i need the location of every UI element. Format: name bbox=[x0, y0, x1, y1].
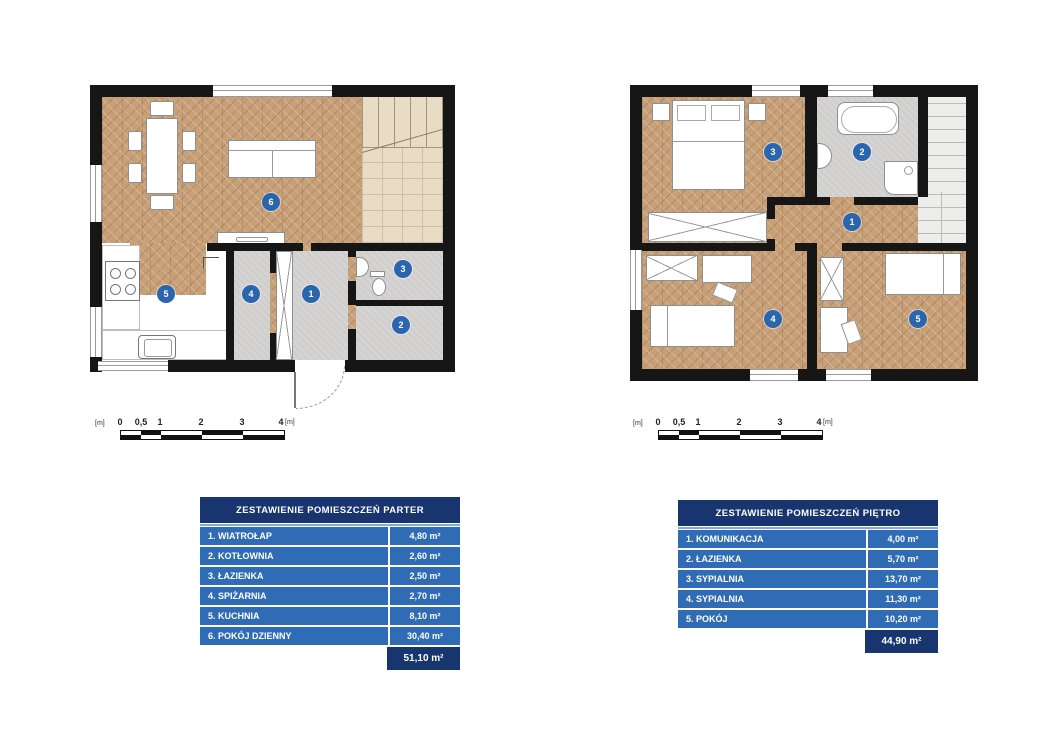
table-row: 1. WIATROŁAP 4,80 m² bbox=[200, 527, 460, 545]
table-row: 3. SYPIALNIA 13,70 m² bbox=[678, 570, 938, 588]
table-row: 1. KOMUNIKACJA 4,00 m² bbox=[678, 530, 938, 548]
legend-table-pietro: ZESTAWIENIE POMIESZCZEŃ PIĘTRO 1. KOMUNI… bbox=[678, 500, 938, 653]
wall-segment bbox=[767, 205, 775, 219]
nightstand bbox=[652, 103, 670, 121]
shower bbox=[884, 161, 918, 195]
legend-table-parter: ZESTAWIENIE POMIESZCZEŃ PARTER 1. WIATRO… bbox=[200, 497, 460, 670]
wardrobe bbox=[646, 255, 698, 281]
scale-tick: 0,5 bbox=[135, 417, 148, 427]
table-row: 6. POKÓJ DZIENNY 30,40 m² bbox=[200, 627, 460, 645]
wardrobe bbox=[648, 212, 767, 242]
scale-tick: 3 bbox=[239, 417, 244, 427]
room-label: 3. SYPIALNIA bbox=[678, 570, 866, 588]
table-row: 2. KOTŁOWNIA 2,60 m² bbox=[200, 547, 460, 565]
burner bbox=[110, 268, 121, 279]
ground-floor-plan: 6 5 4 1 3 2 bbox=[90, 85, 455, 375]
dining-chair bbox=[182, 131, 196, 151]
room-marker-2: 2 bbox=[392, 316, 410, 334]
window bbox=[752, 85, 800, 97]
table-divider bbox=[678, 527, 938, 529]
dining-table bbox=[146, 118, 178, 194]
dining-chair bbox=[150, 101, 174, 116]
single-bed bbox=[650, 305, 735, 347]
bed-pillow-line bbox=[667, 306, 668, 346]
floor-plan-sheet: 6 5 4 1 3 2 bbox=[0, 0, 1052, 744]
room-marker-6: 6 bbox=[262, 193, 280, 211]
window bbox=[826, 369, 871, 381]
room-area: 2,60 m² bbox=[390, 547, 460, 565]
room-label: 3. ŁAZIENKA bbox=[200, 567, 388, 585]
wall-segment bbox=[90, 85, 102, 165]
console-detail bbox=[236, 237, 268, 242]
dining-chair bbox=[128, 163, 142, 183]
entrance-door-swing bbox=[296, 365, 345, 409]
room-label: 1. WIATROŁAP bbox=[200, 527, 388, 545]
room-marker-2: 2 bbox=[853, 143, 871, 161]
room-marker-5: 5 bbox=[909, 310, 927, 328]
room-marker-1: 1 bbox=[843, 213, 861, 231]
wall-segment bbox=[207, 243, 303, 251]
room-area: 8,10 m² bbox=[390, 607, 460, 625]
total-area: 44,90 m² bbox=[865, 630, 938, 653]
room-label: 2. KOTŁOWNIA bbox=[200, 547, 388, 565]
scale-tick: 4 bbox=[278, 417, 283, 427]
room-marker-3: 3 bbox=[394, 260, 412, 278]
table-title: ZESTAWIENIE POMIESZCZEŃ PARTER bbox=[200, 497, 460, 523]
wall-segment bbox=[767, 239, 775, 251]
wall-segment bbox=[168, 360, 295, 372]
bathtub bbox=[837, 102, 899, 135]
bed-sheet-line bbox=[673, 141, 744, 142]
wall-segment bbox=[345, 360, 455, 372]
room-area: 4,00 m² bbox=[868, 530, 938, 548]
window bbox=[750, 369, 798, 381]
total-area: 51,10 m² bbox=[387, 647, 460, 670]
scale-tick: 2 bbox=[736, 417, 741, 427]
wall-segment bbox=[854, 197, 918, 205]
room-marker-4: 4 bbox=[764, 310, 782, 328]
scale-tick: 1 bbox=[157, 417, 162, 427]
stair-mid-line bbox=[941, 192, 942, 247]
wardrobe bbox=[820, 257, 844, 301]
tub-basin bbox=[841, 106, 897, 133]
wall-segment bbox=[630, 369, 978, 381]
terrace-door bbox=[98, 361, 168, 371]
wall-segment bbox=[443, 85, 455, 372]
room-label: 4. SYPIALNIA bbox=[678, 590, 866, 608]
wall-segment bbox=[270, 251, 276, 273]
room-area: 13,70 m² bbox=[868, 570, 938, 588]
table-title: ZESTAWIENIE POMIESZCZEŃ PIĘTRO bbox=[678, 500, 938, 526]
room-area: 2,70 m² bbox=[390, 587, 460, 605]
scale-unit-label: [m] bbox=[95, 420, 105, 427]
scale-unit-label: [m] bbox=[633, 420, 643, 427]
wall-segment bbox=[348, 251, 356, 257]
stove bbox=[105, 261, 140, 301]
single-bed bbox=[885, 253, 961, 295]
room-label: 6. POKÓJ DZIENNY bbox=[200, 627, 388, 645]
shower-head bbox=[904, 166, 913, 175]
window bbox=[90, 165, 102, 222]
wall-segment bbox=[795, 243, 807, 251]
scale-tick: 2 bbox=[198, 417, 203, 427]
wall-segment bbox=[807, 243, 817, 369]
double-bed bbox=[672, 100, 745, 190]
room-marker-1: 1 bbox=[302, 285, 320, 303]
entry-hall-floor bbox=[293, 251, 348, 360]
room-label: 5. POKÓJ bbox=[678, 610, 866, 628]
room-area: 4,80 m² bbox=[390, 527, 460, 545]
room-label: 5. KUCHNIA bbox=[200, 607, 388, 625]
wall-segment bbox=[356, 300, 443, 306]
wall-segment bbox=[311, 243, 443, 251]
room-marker-5: 5 bbox=[157, 285, 175, 303]
wall-segment bbox=[966, 85, 978, 381]
pillow bbox=[677, 105, 706, 121]
window bbox=[213, 85, 332, 97]
room-area: 10,20 m² bbox=[868, 610, 938, 628]
stair-under-grid bbox=[362, 147, 443, 243]
room-area: 30,40 m² bbox=[390, 627, 460, 645]
scale-bar bbox=[658, 430, 823, 440]
wall-segment bbox=[270, 333, 276, 360]
wall-segment bbox=[642, 243, 767, 251]
wall-segment bbox=[817, 197, 830, 205]
kitchen-sink bbox=[138, 335, 176, 359]
wall-segment bbox=[348, 281, 356, 305]
burner bbox=[125, 268, 136, 279]
window bbox=[828, 85, 873, 97]
scale-tick: 0 bbox=[655, 417, 660, 427]
room-area: 11,30 m² bbox=[868, 590, 938, 608]
pantry-floor bbox=[234, 251, 270, 360]
window bbox=[90, 307, 102, 357]
wall-segment bbox=[226, 251, 234, 360]
room-label: 2. ŁAZIENKA bbox=[678, 550, 866, 568]
dining-chair bbox=[128, 131, 142, 151]
scale-unit-label: [m] bbox=[823, 419, 833, 426]
bed-pillow-line bbox=[943, 254, 944, 294]
dining-chair bbox=[150, 195, 174, 210]
window bbox=[630, 250, 642, 310]
room-label: 4. SPIŻARNIA bbox=[200, 587, 388, 605]
wall-segment bbox=[918, 97, 928, 197]
wall-segment bbox=[348, 329, 356, 360]
burner bbox=[110, 284, 121, 295]
toilet-bowl bbox=[372, 278, 386, 296]
room-label: 1. KOMUNIKACJA bbox=[678, 530, 866, 548]
scale-tick: 0 bbox=[117, 417, 122, 427]
room-marker-4: 4 bbox=[242, 285, 260, 303]
table-row: 3. ŁAZIENKA 2,50 m² bbox=[200, 567, 460, 585]
scale-tick: 3 bbox=[777, 417, 782, 427]
table-divider bbox=[200, 524, 460, 526]
table-row: 5. POKÓJ 10,20 m² bbox=[678, 610, 938, 628]
dining-chair bbox=[182, 163, 196, 183]
room-marker-3: 3 bbox=[764, 143, 782, 161]
wall-segment bbox=[767, 197, 805, 205]
room-area: 2,50 m² bbox=[390, 567, 460, 585]
table-row: 4. SPIŻARNIA 2,70 m² bbox=[200, 587, 460, 605]
pillow bbox=[711, 105, 740, 121]
sink-basin bbox=[144, 339, 172, 357]
hall-wardrobe bbox=[276, 251, 293, 360]
staircase bbox=[362, 97, 443, 243]
table-total-row: 44,90 m² bbox=[678, 630, 938, 653]
scale-bar-ground: [m] 0 0,5 1 2 3 4 [m] bbox=[95, 417, 305, 445]
sofa bbox=[228, 140, 316, 178]
wall-segment bbox=[842, 243, 966, 251]
nightstand bbox=[748, 103, 766, 121]
scale-tick: 4 bbox=[816, 417, 821, 427]
scale-unit-label: [m] bbox=[285, 419, 295, 426]
toilet-tank bbox=[370, 271, 385, 277]
scale-bar bbox=[120, 430, 285, 440]
scale-tick: 1 bbox=[695, 417, 700, 427]
upper-floor-plan: 1 2 3 4 5 bbox=[630, 85, 978, 381]
burner bbox=[125, 284, 136, 295]
table-total-row: 51,10 m² bbox=[200, 647, 460, 670]
table-row: 4. SYPIALNIA 11,30 m² bbox=[678, 590, 938, 608]
counter-corner-mark bbox=[203, 257, 219, 269]
desk bbox=[702, 255, 752, 283]
wall-segment bbox=[805, 97, 817, 205]
wall-segment bbox=[630, 85, 642, 250]
sofa-seat-split bbox=[272, 150, 273, 177]
wall-segment bbox=[90, 222, 102, 307]
scale-tick: 0,5 bbox=[673, 417, 686, 427]
scale-bar-upper: [m] 0 0,5 1 2 3 4 [m] bbox=[633, 417, 843, 445]
room-area: 5,70 m² bbox=[868, 550, 938, 568]
wall-segment bbox=[630, 85, 978, 97]
table-row: 2. ŁAZIENKA 5,70 m² bbox=[678, 550, 938, 568]
table-row: 5. KUCHNIA 8,10 m² bbox=[200, 607, 460, 625]
